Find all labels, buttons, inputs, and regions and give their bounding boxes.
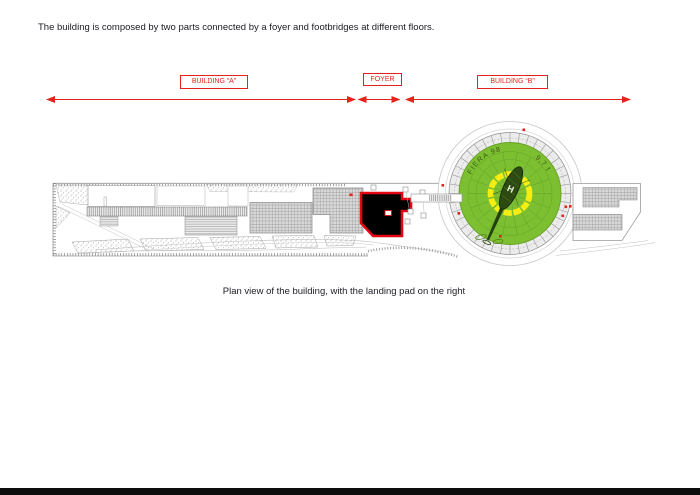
page-bottom-bar: [0, 488, 700, 495]
caption: Plan view of the building, with the land…: [0, 286, 688, 297]
document-page: The building is composed by two parts co…: [0, 0, 700, 495]
landing-pad: FIERA 98 9,7 t H: [438, 122, 582, 266]
footbridge: [411, 194, 462, 202]
plan-drawing: FIERA 98 9,7 t H: [0, 0, 700, 495]
